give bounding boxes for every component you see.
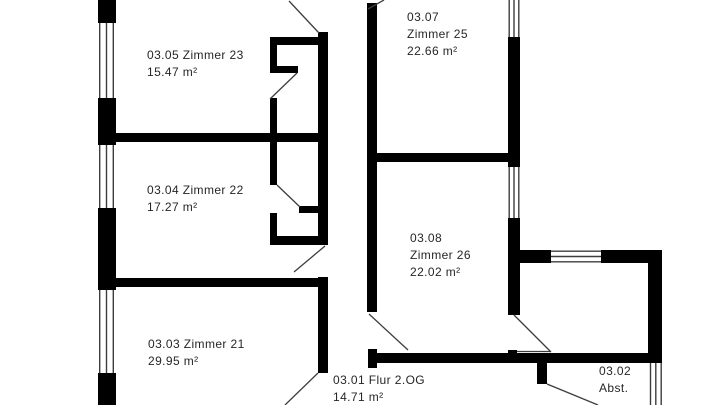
room-label-line: Abst.: [599, 380, 631, 397]
room-label-zimmer-26: 03.08 Zimmer 26 22.02 m²: [410, 230, 471, 281]
door-swing-line: [277, 185, 300, 207]
door-swing-line: [285, 373, 318, 405]
room-label-zimmer-25: 03.07 Zimmer 25 22.66 m²: [407, 9, 468, 60]
room-label-line: 03.08: [410, 230, 471, 247]
wall-segment: [368, 349, 377, 368]
wall-segment: [98, 98, 116, 145]
room-label-line: 17.27 m²: [147, 199, 244, 216]
door-swing-line: [547, 384, 598, 405]
room-label-line: 14.71 m²: [333, 389, 425, 405]
door-swing-line: [294, 246, 325, 272]
room-label-line: 15.47 m²: [147, 64, 244, 81]
wall-segment: [377, 353, 648, 363]
room-label-abstellraum: 03.02 Abst.: [599, 363, 631, 397]
wall-segment: [648, 250, 662, 363]
window-icon: [551, 251, 601, 262]
room-label-line: Zimmer 25: [407, 26, 468, 43]
wall-segment: [270, 66, 298, 73]
room-label-line: 03.03 Zimmer 21: [148, 336, 245, 353]
wall-segment: [270, 37, 318, 45]
wall-segment: [508, 350, 517, 354]
wall-segment: [377, 153, 514, 162]
room-label-line: 03.01 Flur 2.OG: [333, 372, 425, 389]
door-swing-line: [514, 315, 551, 352]
wall-segment: [114, 278, 318, 287]
door-swing-line: [270, 73, 297, 99]
window-icon: [100, 290, 114, 373]
room-label-line: 03.07: [407, 9, 468, 26]
room-label-zimmer-22: 03.04 Zimmer 22 17.27 m²: [147, 182, 244, 216]
wall-segment: [537, 363, 547, 384]
wall-segment: [318, 277, 328, 373]
wall-segment: [367, 3, 377, 312]
room-label-line: 03.04 Zimmer 22: [147, 182, 244, 199]
wall-segment: [114, 133, 328, 142]
room-label-line: 22.66 m²: [407, 43, 468, 60]
door-swing-line: [369, 314, 408, 350]
room-label-zimmer-23: 03.05 Zimmer 23 15.47 m²: [147, 47, 244, 81]
wall-segment: [98, 0, 116, 23]
window-icon: [651, 363, 662, 405]
door-swing-line: [289, 1, 319, 33]
floor-plan-canvas: 03.05 Zimmer 23 15.47 m² 03.04 Zimmer 22…: [0, 0, 720, 405]
room-label-flur: 03.01 Flur 2.OG 14.71 m²: [333, 372, 425, 405]
window-icon: [100, 23, 114, 98]
window-icon: [509, 0, 519, 37]
wall-segment: [98, 208, 116, 290]
wall-segment: [299, 206, 318, 213]
wall-segment: [508, 218, 520, 315]
wall-segment: [270, 98, 277, 185]
floor-plan-drawing: [0, 0, 720, 405]
wall-segment: [520, 250, 551, 263]
room-label-line: 03.05 Zimmer 23: [147, 47, 244, 64]
wall-segment: [601, 250, 649, 263]
room-label-line: 22.02 m²: [410, 264, 471, 281]
room-label-line: Zimmer 26: [410, 247, 471, 264]
wall-segment: [98, 373, 116, 405]
room-label-line: 03.02: [599, 363, 631, 380]
window-icon: [100, 145, 114, 208]
room-label-line: 29.95 m²: [148, 353, 245, 370]
wall-segment: [318, 32, 328, 245]
window-icon: [509, 167, 519, 218]
wall-segment: [270, 236, 328, 245]
room-label-zimmer-21: 03.03 Zimmer 21 29.95 m²: [148, 336, 245, 370]
wall-segment: [508, 37, 520, 167]
